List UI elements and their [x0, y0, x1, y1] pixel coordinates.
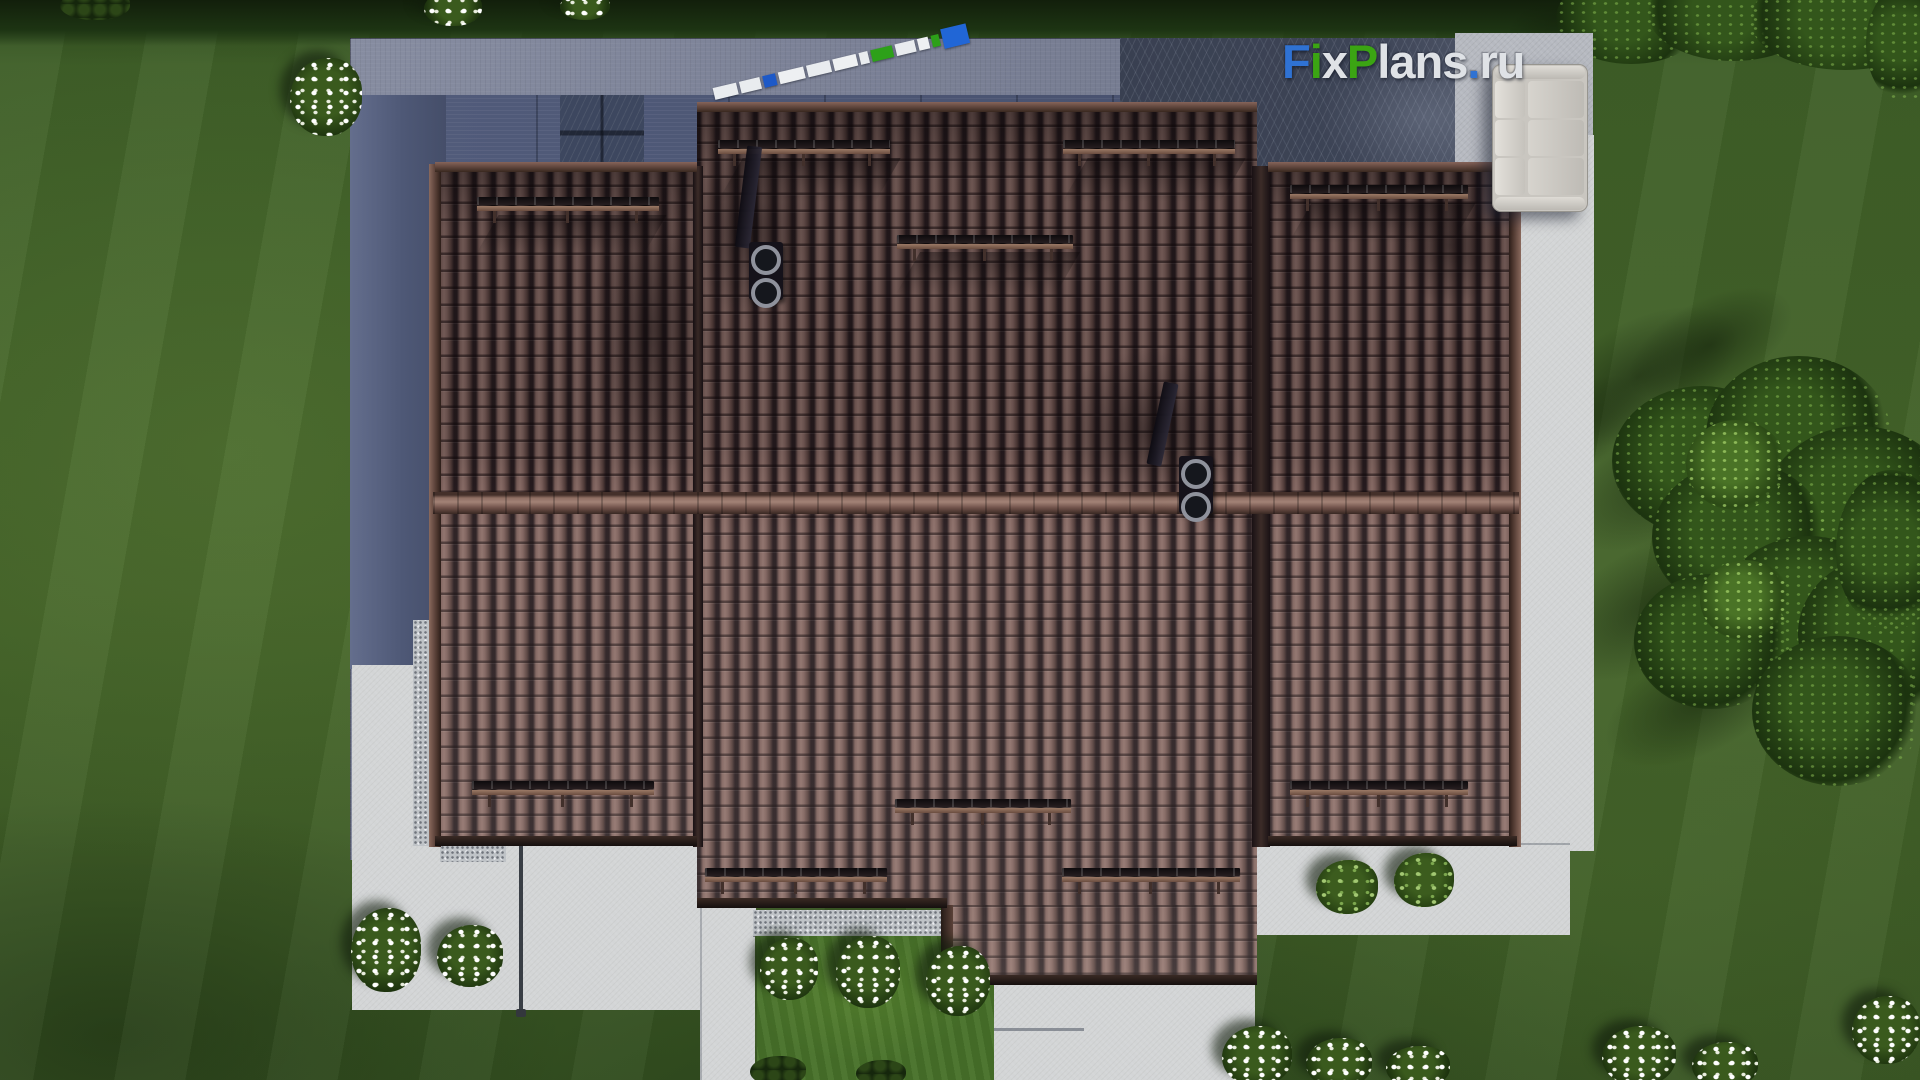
ruler-segment — [894, 40, 916, 56]
logo-letter: F — [1282, 35, 1310, 88]
sofa-seat-cushions — [1528, 81, 1584, 195]
ruler-segment — [778, 66, 806, 84]
fascia-top-central — [697, 102, 1257, 112]
ruler-segment — [940, 23, 970, 49]
logo-letter: lans — [1377, 35, 1467, 88]
logo-letter: ru — [1479, 35, 1524, 88]
patio-bottom-left — [352, 843, 702, 1010]
sofa-back-cushions — [1495, 81, 1525, 195]
ruler-segment — [806, 60, 832, 77]
vent-cap-icon — [1181, 492, 1211, 522]
chimney-vent-1 — [749, 242, 783, 300]
bottom-right-walkway — [1255, 843, 1570, 935]
eave-left-wing — [435, 836, 697, 846]
drain-line — [519, 845, 523, 1013]
center-walkway — [700, 906, 756, 1080]
logo-letter: x — [1322, 35, 1347, 88]
roof-ridge — [433, 492, 1519, 514]
sofa-armrest — [1495, 197, 1585, 210]
ruler-segment — [713, 83, 739, 100]
eave-central — [697, 898, 947, 908]
vent-cap-icon — [751, 245, 781, 275]
ruler-segment — [930, 34, 941, 48]
fascia-top-left-wing — [435, 162, 697, 172]
ruler-segment — [858, 51, 870, 65]
eave-porch — [945, 975, 1257, 985]
ruler-segment — [917, 37, 930, 51]
vent-cap-icon — [1181, 459, 1211, 489]
porch-walkway — [992, 983, 1255, 1080]
right-walkway — [1517, 135, 1594, 851]
ruler-segment — [870, 45, 894, 62]
roof-porch-extension — [945, 905, 1257, 985]
stone-steps — [560, 95, 644, 171]
ruler-segment — [739, 77, 762, 94]
eave-right-wing — [1268, 836, 1517, 846]
logo-letter: . — [1467, 35, 1479, 88]
logo-letter: i — [1310, 35, 1322, 88]
porch-step-edge — [992, 1028, 1084, 1031]
logo-letter: P — [1347, 35, 1377, 88]
ruler-segment — [762, 73, 777, 88]
granite-border-garden — [753, 910, 947, 937]
chimney-vent-2 — [1179, 456, 1213, 514]
fascia-top-right-wing — [1268, 162, 1517, 172]
vent-cap-icon — [751, 278, 781, 308]
ruler-segment — [832, 54, 858, 71]
aerial-roof-render: FixPlans.ru — [0, 0, 1920, 1080]
porch-gable-trim — [941, 905, 953, 985]
watermark-logo: FixPlans.ru — [1282, 34, 1524, 89]
